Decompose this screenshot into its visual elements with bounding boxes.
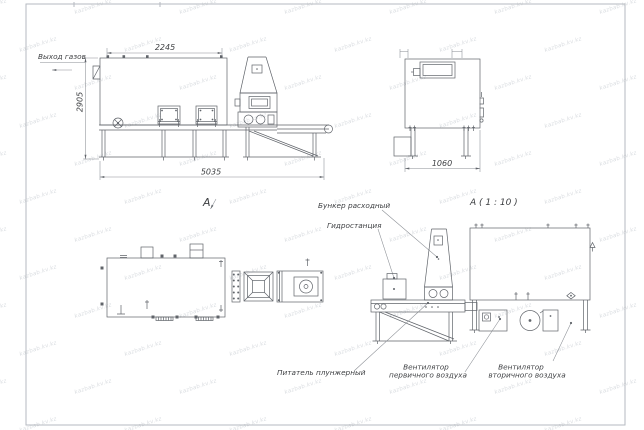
watermark-text: kazbab.kv.kz (74, 226, 113, 244)
watermark-text: kazbab.kv.kz (389, 0, 428, 16)
watermark-text: kazbab.kv.kz (439, 416, 478, 430)
watermark-text: kazbab.kv.kz (19, 340, 58, 358)
secondary-fan-label: вторичного воздуха (488, 371, 565, 380)
plunger-feeder-label: Питатель плунжерный (277, 368, 366, 377)
furnace-section-body (470, 224, 595, 301)
watermark-text: kazbab.kv.kz (284, 0, 323, 16)
watermark-text: kazbab.kv.kz (599, 226, 638, 244)
dim-2245: 2245 (155, 43, 175, 52)
leader-line (553, 323, 571, 361)
watermark-text: kazbab.kv.kz (334, 36, 373, 54)
watermark-text: kazbab.kv.kz (19, 112, 58, 130)
watermark-text: kazbab.kv.kz (544, 340, 583, 358)
watermark-text: kazbab.kv.kz (0, 150, 8, 168)
watermark-text: kazbab.kv.kz (389, 226, 428, 244)
watermark-text: kazbab.kv.kz (544, 416, 583, 430)
secondary-air-fan (520, 310, 558, 331)
watermark-layer: kazbab.kv.kzkazbab.kv.kzkazbab.kv.kzkazb… (0, 0, 644, 430)
watermark-text: kazbab.kv.kz (284, 74, 323, 92)
plan-feeder-top (277, 271, 323, 302)
feed-hopper (235, 57, 277, 112)
watermark-text: kazbab.kv.kz (124, 340, 163, 358)
watermark-text: kazbab.kv.kz (0, 378, 8, 396)
valve-handwheel (113, 118, 123, 128)
dim-1060-group: 1060 (405, 130, 480, 172)
watermark-text: kazbab.kv.kz (494, 74, 533, 92)
watermark-text: kazbab.kv.kz (284, 378, 323, 396)
watermark-text: kazbab.kv.kz (19, 416, 58, 430)
watermark-text: kazbab.kv.kz (334, 264, 373, 282)
primary-fan-label: первичного воздуха (389, 371, 467, 380)
dim-2905: 2905 (76, 92, 85, 112)
gas-outlet-label: Выход газов (38, 52, 86, 61)
vent-valve-icon (590, 243, 595, 252)
watermark-text: kazbab.kv.kz (389, 378, 428, 396)
watermark-text: kazbab.kv.kz (229, 416, 268, 430)
watermark-text: kazbab.kv.kz (439, 340, 478, 358)
watermark-text: kazbab.kv.kz (439, 264, 478, 282)
watermark-text: kazbab.kv.kz (179, 0, 218, 16)
watermark-text: kazbab.kv.kz (494, 226, 533, 244)
watermark-text: kazbab.kv.kz (389, 74, 428, 92)
dim-1060: 1060 (432, 159, 452, 168)
watermark-text: kazbab.kv.kz (179, 150, 218, 168)
watermark-text: kazbab.kv.kz (0, 74, 8, 92)
ash-box (394, 137, 411, 156)
watermark-text: kazbab.kv.kz (544, 36, 583, 54)
watermark-text: kazbab.kv.kz (599, 378, 638, 396)
inspection-door (196, 106, 217, 124)
watermark-text: kazbab.kv.kz (229, 36, 268, 54)
watermark-text: kazbab.kv.kz (179, 74, 218, 92)
watermark-text: kazbab.kv.kz (599, 0, 638, 16)
watermark-text: kazbab.kv.kz (229, 264, 268, 282)
plunger-feeder-unit (425, 287, 453, 300)
watermark-text: kazbab.kv.kz (179, 378, 218, 396)
watermark-text: kazbab.kv.kz (494, 378, 533, 396)
watermark-text: kazbab.kv.kz (179, 226, 218, 244)
watermark-text: kazbab.kv.kz (599, 302, 638, 320)
plan-hopper-top (244, 272, 273, 301)
drawing-sheet: kazbab.kv.kzkazbab.kv.kzkazbab.kv.kzkazb… (0, 0, 644, 430)
furnace-body (100, 58, 227, 125)
watermark-text: kazbab.kv.kz (544, 264, 583, 282)
feed-bunker-label: Бункер расходный (318, 201, 390, 210)
watermark-text: kazbab.kv.kz (494, 0, 533, 16)
conveyor (277, 125, 333, 133)
section-view-title: A ( 1 : 10 ) (469, 198, 518, 208)
dim-2905-group: 2905 (76, 58, 100, 159)
watermark-text: kazbab.kv.kz (229, 340, 268, 358)
watermark-text: kazbab.kv.kz (544, 188, 583, 206)
support-frame (99, 125, 277, 161)
watermark-text: kazbab.kv.kz (0, 302, 8, 320)
watermark-text: kazbab.kv.kz (229, 188, 268, 206)
watermark-text: kazbab.kv.kz (284, 302, 323, 320)
watermark-text: kazbab.kv.kz (439, 112, 478, 130)
watermark-text: kazbab.kv.kz (334, 340, 373, 358)
watermark-text: kazbab.kv.kz (0, 226, 8, 244)
dim-5035: 5035 (201, 168, 221, 177)
hydrostation-label: Гидростанция (327, 221, 382, 230)
watermark-text: kazbab.kv.kz (74, 378, 113, 396)
side-elevation-view: 1060 (394, 49, 484, 172)
front-elevation-view: 2245 2905 5035 Выход газов A (38, 43, 333, 209)
watermark-text: kazbab.kv.kz (599, 150, 638, 168)
watermark-text: kazbab.kv.kz (124, 188, 163, 206)
watermark-text: kazbab.kv.kz (389, 150, 428, 168)
top-hatch (411, 62, 455, 78)
watermark-text: kazbab.kv.kz (389, 302, 428, 320)
watermark-text: kazbab.kv.kz (124, 416, 163, 430)
watermark-text: kazbab.kv.kz (599, 74, 638, 92)
watermark-text: kazbab.kv.kz (0, 0, 8, 16)
technical-drawing: kazbab.kv.kzkazbab.kv.kzkazbab.kv.kzkazb… (0, 0, 644, 430)
watermark-text: kazbab.kv.kz (74, 0, 113, 16)
watermark-text: kazbab.kv.kz (334, 112, 373, 130)
watermark-text: kazbab.kv.kz (284, 226, 323, 244)
watermark-text: kazbab.kv.kz (124, 264, 163, 282)
section-arrow-icon (211, 199, 217, 209)
watermark-text: kazbab.kv.kz (544, 112, 583, 130)
section-mark-a: A (202, 196, 211, 209)
watermark-text: kazbab.kv.kz (494, 150, 533, 168)
watermark-text: kazbab.kv.kz (19, 264, 58, 282)
watermark-text: kazbab.kv.kz (334, 416, 373, 430)
section-truss (373, 312, 458, 344)
watermark-text: kazbab.kv.kz (19, 188, 58, 206)
watermark-text: kazbab.kv.kz (124, 112, 163, 130)
watermark-text: kazbab.kv.kz (284, 150, 323, 168)
